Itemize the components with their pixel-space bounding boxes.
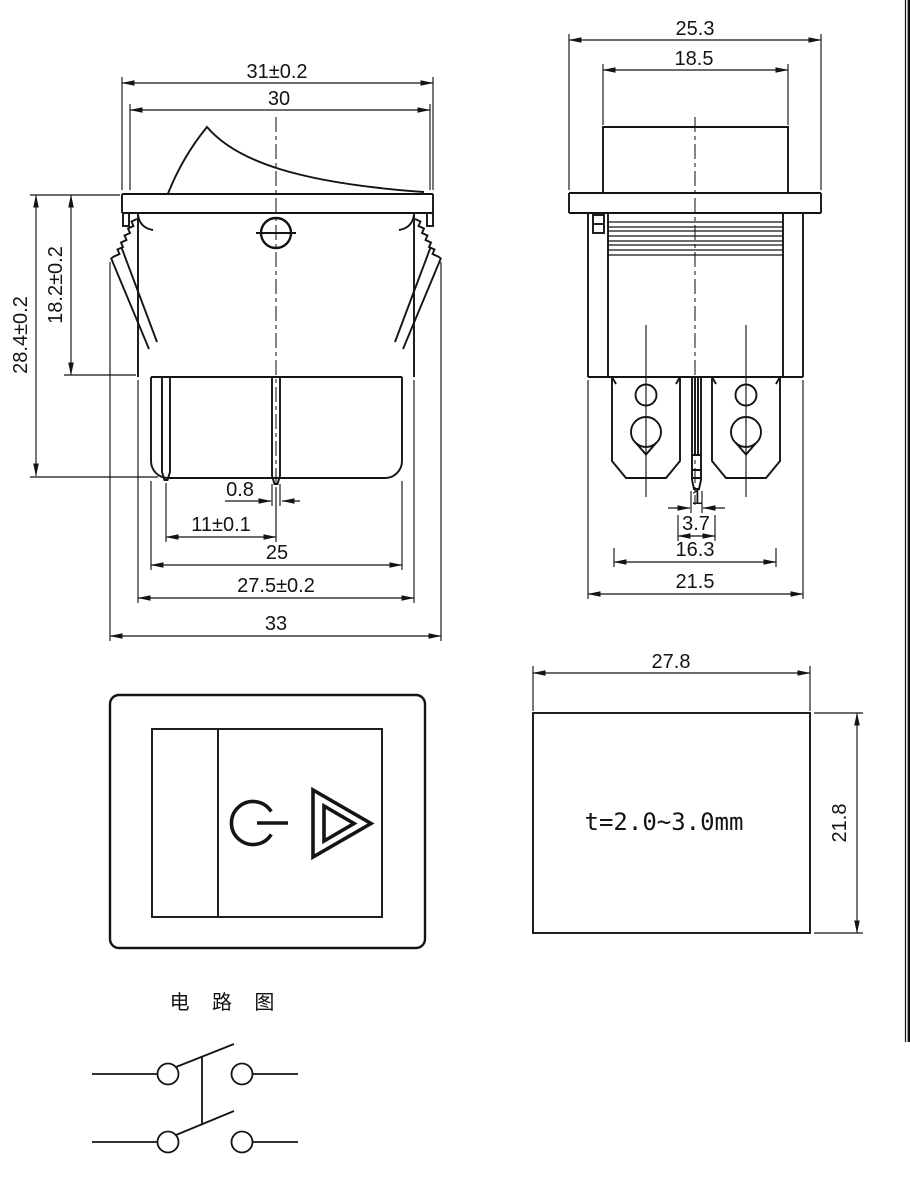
sheet-border bbox=[906, 0, 909, 1042]
terminal-left bbox=[612, 325, 680, 497]
circuit-diagram: 电 路 图 bbox=[92, 990, 298, 1153]
panel-thickness-label: t=2.0~3.0mm bbox=[585, 808, 744, 836]
dim-front-flange-width: 31±0.2 bbox=[246, 61, 307, 83]
panel-symbol-view bbox=[110, 695, 425, 948]
terminal-right bbox=[712, 325, 780, 497]
dim-side-terminal-span: 16.3 bbox=[676, 539, 715, 561]
panel-cutout-view: t=2.0~3.0mm 27.8 21.8 bbox=[533, 651, 863, 933]
technical-drawing-sheet: 31±0.2 30 28.4±0.2 18.2±0.2 0.8 11±0.1 bbox=[0, 0, 910, 1200]
cutout-dimensions: 27.8 21.8 bbox=[533, 651, 863, 933]
front-view: 31±0.2 30 28.4±0.2 18.2±0.2 0.8 11±0.1 bbox=[10, 61, 441, 641]
dim-side-slot-width: 3.7 bbox=[682, 513, 710, 535]
dim-side-actuator-width: 18.5 bbox=[675, 48, 714, 70]
circuit-title: 电 路 图 bbox=[170, 990, 283, 1014]
terminal-center bbox=[692, 377, 701, 489]
side-view: 25.3 18.5 1 3.7 16.3 21.5 bbox=[569, 18, 821, 599]
switch-pole-bottom bbox=[92, 1111, 298, 1153]
dim-side-flange-width: 25.3 bbox=[676, 18, 715, 40]
rocker-actuator-profile bbox=[168, 127, 424, 194]
dim-cutout-height: 21.8 bbox=[829, 804, 851, 843]
front-view-dimensions: 31±0.2 30 28.4±0.2 18.2±0.2 0.8 11±0.1 bbox=[10, 61, 441, 641]
dim-front-opening-width: 30 bbox=[268, 88, 290, 110]
dim-front-terminal-pitch: 11±0.1 bbox=[191, 514, 251, 536]
dim-front-overall-width: 33 bbox=[265, 613, 287, 635]
dim-front-total-height: 28.4±0.2 bbox=[10, 296, 32, 374]
dim-front-terminal-thickness: 0.8 bbox=[226, 479, 254, 501]
dim-cutout-width: 27.8 bbox=[652, 651, 691, 673]
mounting-clip-right bbox=[395, 219, 441, 349]
dim-side-center-terminal-thickness: 1 bbox=[691, 487, 702, 509]
latch-detail bbox=[593, 215, 604, 233]
nested-triangles-icon bbox=[313, 790, 371, 857]
terminal-pin bbox=[162, 377, 170, 480]
switch-pole-top bbox=[92, 1044, 298, 1085]
dim-front-body-width: 27.5±0.2 bbox=[237, 575, 315, 597]
dim-side-body-width: 21.5 bbox=[676, 571, 715, 593]
power-icon bbox=[231, 802, 288, 845]
dim-front-housing-width: 25 bbox=[266, 542, 288, 564]
dim-front-body-height: 18.2±0.2 bbox=[45, 246, 67, 324]
mounting-clip-left bbox=[111, 219, 157, 349]
